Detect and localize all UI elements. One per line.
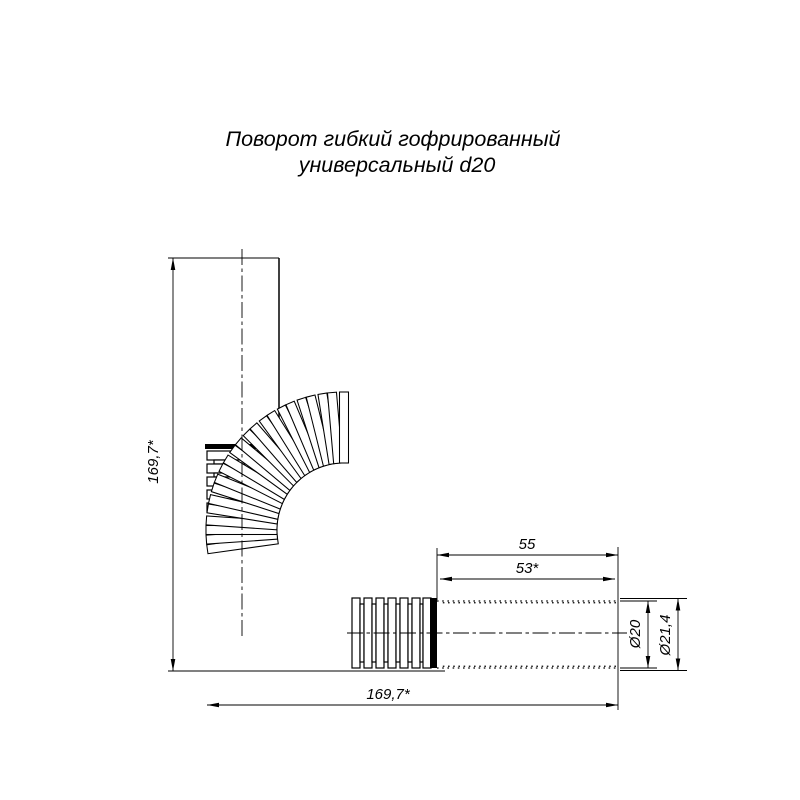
dim-height-label: 169,7* [145, 439, 162, 484]
dim-diameter-nominal: Ø20 [620, 601, 657, 668]
title-block: Поворот гибкий гофрированный универсальн… [226, 127, 561, 177]
arrow-right-icon [603, 577, 615, 582]
arrow-right-icon [606, 703, 618, 708]
bend-corrugation [206, 392, 349, 554]
arrow-right-icon [606, 553, 618, 558]
bend-ring [340, 392, 349, 463]
drawing-canvas: Поворот гибкий гофрированный универсальн… [0, 0, 800, 800]
arrow-left-icon [437, 553, 449, 558]
dim-end-length-star-label: 53* [516, 560, 540, 577]
drawing-sheet: Поворот гибкий гофрированный универсальн… [0, 0, 800, 800]
arrow-up-icon [171, 258, 176, 270]
arrow-up-icon [646, 601, 651, 613]
arrow-down-icon [676, 659, 681, 671]
arrow-up-icon [676, 599, 681, 611]
title-line-2: универсальный d20 [297, 153, 496, 177]
dim-end-length-label: 55 [519, 536, 536, 553]
arrow-down-icon [646, 656, 651, 668]
dim-diameter-nominal-label: Ø20 [627, 619, 644, 649]
dim-end-length-star: 53* [440, 560, 615, 581]
corrugation-connector [396, 604, 400, 662]
arrow-down-icon [171, 659, 176, 671]
arrow-left-icon [440, 577, 452, 582]
dim-diameter-outer-label: Ø21,4 [657, 615, 674, 657]
arrow-left-icon [207, 703, 219, 708]
dim-length: 169,7* [207, 686, 618, 707]
dim-length-label: 169,7* [366, 686, 411, 703]
title-line-1: Поворот гибкий гофрированный [226, 127, 561, 151]
dim-height: 169,7* [145, 258, 175, 671]
vertical-pipe [168, 258, 279, 445]
